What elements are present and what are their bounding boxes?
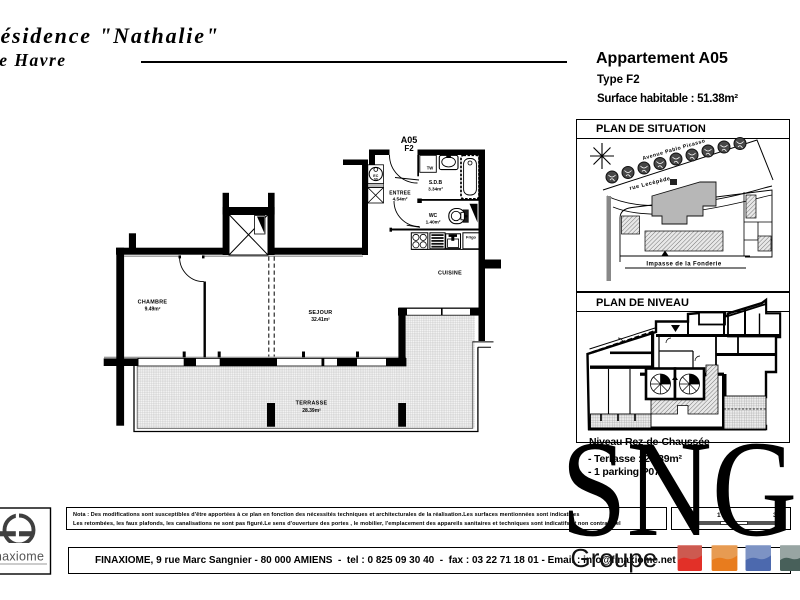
svg-text:CHAMBRE: CHAMBRE bbox=[138, 299, 168, 305]
svg-text:00: 00 bbox=[374, 178, 378, 182]
svg-text:Frigo: Frigo bbox=[466, 234, 477, 239]
svg-text:TERRASSE: TERRASSE bbox=[296, 401, 328, 407]
svg-text:28.39m²: 28.39m² bbox=[302, 408, 321, 414]
svg-text:9.49m²: 9.49m² bbox=[145, 306, 161, 312]
svg-text:TW: TW bbox=[427, 166, 434, 171]
svg-text:32.41m²: 32.41m² bbox=[311, 317, 330, 323]
svg-text:SEJOUR: SEJOUR bbox=[309, 310, 333, 316]
svg-text:4.54m²: 4.54m² bbox=[393, 197, 408, 202]
svg-text:finaxiome: finaxiome bbox=[0, 550, 44, 564]
svg-text:S.D.B: S.D.B bbox=[429, 180, 443, 186]
svg-text:WC: WC bbox=[429, 213, 438, 219]
svg-text:3.34m²: 3.34m² bbox=[428, 187, 443, 192]
svg-text:Impasse de la Fonderie: Impasse de la Fonderie bbox=[646, 262, 721, 268]
svg-text:1.40m²: 1.40m² bbox=[426, 220, 441, 225]
svg-text:rue Lecépède: rue Lecépède bbox=[629, 176, 671, 192]
svg-text:CUISINE: CUISINE bbox=[438, 270, 462, 276]
svg-text:F2: F2 bbox=[404, 144, 414, 153]
svg-text:ENTREE: ENTREE bbox=[389, 191, 411, 197]
